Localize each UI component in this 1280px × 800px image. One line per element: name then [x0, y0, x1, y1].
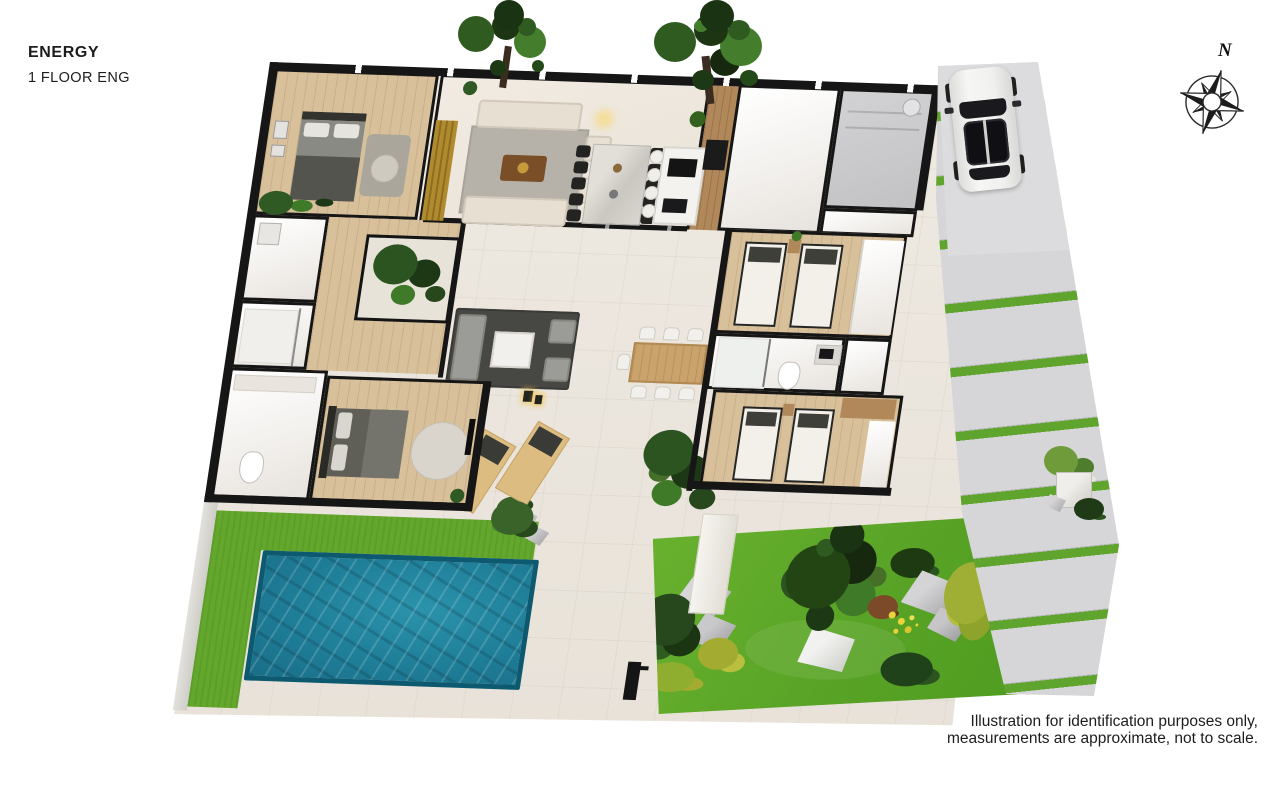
- lantern: [523, 391, 534, 402]
- outdoor-shower-arm: [638, 666, 649, 670]
- outdoor-chair: [630, 385, 648, 399]
- sofa: [475, 99, 583, 131]
- table-decor: [612, 163, 622, 172]
- tree-canopy: [494, 0, 524, 30]
- wardrobe: [840, 398, 897, 420]
- dining-chair: [575, 145, 591, 157]
- bed-double: [290, 119, 366, 201]
- outdoor-chair: [687, 328, 705, 342]
- pillow: [333, 124, 360, 139]
- blanket: [290, 155, 361, 201]
- tree-trunk: [702, 56, 715, 105]
- tree: [642, 0, 772, 112]
- floorplan-illustration: ENERGY 1 FLOOR ENG: [0, 0, 1280, 800]
- compass-north-label: N: [1217, 40, 1233, 61]
- wall-art: [270, 144, 286, 156]
- pillow-dark: [804, 249, 838, 265]
- page-title: ENERGY: [28, 44, 99, 62]
- outdoor-chair: [616, 354, 631, 370]
- lantern: [534, 395, 542, 404]
- pillow: [303, 123, 330, 138]
- walkway-planter: [1040, 444, 1112, 530]
- tree-canopy: [700, 0, 734, 32]
- tree-canopy: [654, 22, 696, 62]
- pillow-dark: [748, 247, 782, 263]
- palm-plant: [1074, 498, 1104, 520]
- outdoor-coffee-table: [490, 331, 535, 368]
- sink: [662, 198, 688, 213]
- tree: [448, 0, 560, 96]
- outdoor-armchair: [548, 319, 578, 344]
- pool: [244, 550, 539, 690]
- car-mirror: [944, 107, 954, 114]
- vanity: [233, 374, 317, 393]
- pillow: [335, 412, 353, 438]
- bed-master: [327, 408, 409, 479]
- sink-dark: [819, 349, 835, 359]
- pillow-dark: [745, 411, 777, 426]
- outdoor-chair: [678, 387, 696, 401]
- page-subtitle: 1 FLOOR ENG: [28, 70, 130, 86]
- car-mirror: [1012, 100, 1022, 107]
- pillow-dark: [797, 413, 829, 428]
- outdoor-dining-table: [628, 342, 708, 385]
- dining-chair: [571, 177, 587, 189]
- nightstand: [782, 404, 795, 416]
- tree-trunk: [499, 46, 512, 89]
- pillow: [330, 444, 348, 470]
- atrium-plants: [370, 244, 420, 286]
- lounger-cushion: [528, 426, 563, 457]
- outdoor-chair: [663, 327, 681, 341]
- cooktop: [667, 158, 698, 177]
- wall-art: [273, 120, 290, 138]
- compass-rose-icon: N: [1174, 38, 1258, 144]
- car: [933, 58, 1039, 207]
- oven-column: [702, 140, 729, 171]
- sofa: [461, 195, 569, 227]
- washer: [257, 222, 282, 245]
- atrium-planter: [354, 234, 461, 323]
- outdoor-armchair: [542, 357, 572, 382]
- dining-chair: [568, 193, 584, 205]
- shower-tray: [237, 308, 299, 364]
- outdoor-chair: [654, 386, 672, 400]
- dining-chair: [566, 209, 582, 221]
- table-decor: [608, 189, 618, 198]
- tree-rock-planter: [796, 626, 857, 672]
- outdoor-chair: [639, 326, 657, 340]
- tree-canopy: [458, 16, 494, 52]
- room-closet-a: [838, 337, 892, 395]
- dining-chair: [573, 161, 589, 173]
- room-utility: [240, 214, 329, 303]
